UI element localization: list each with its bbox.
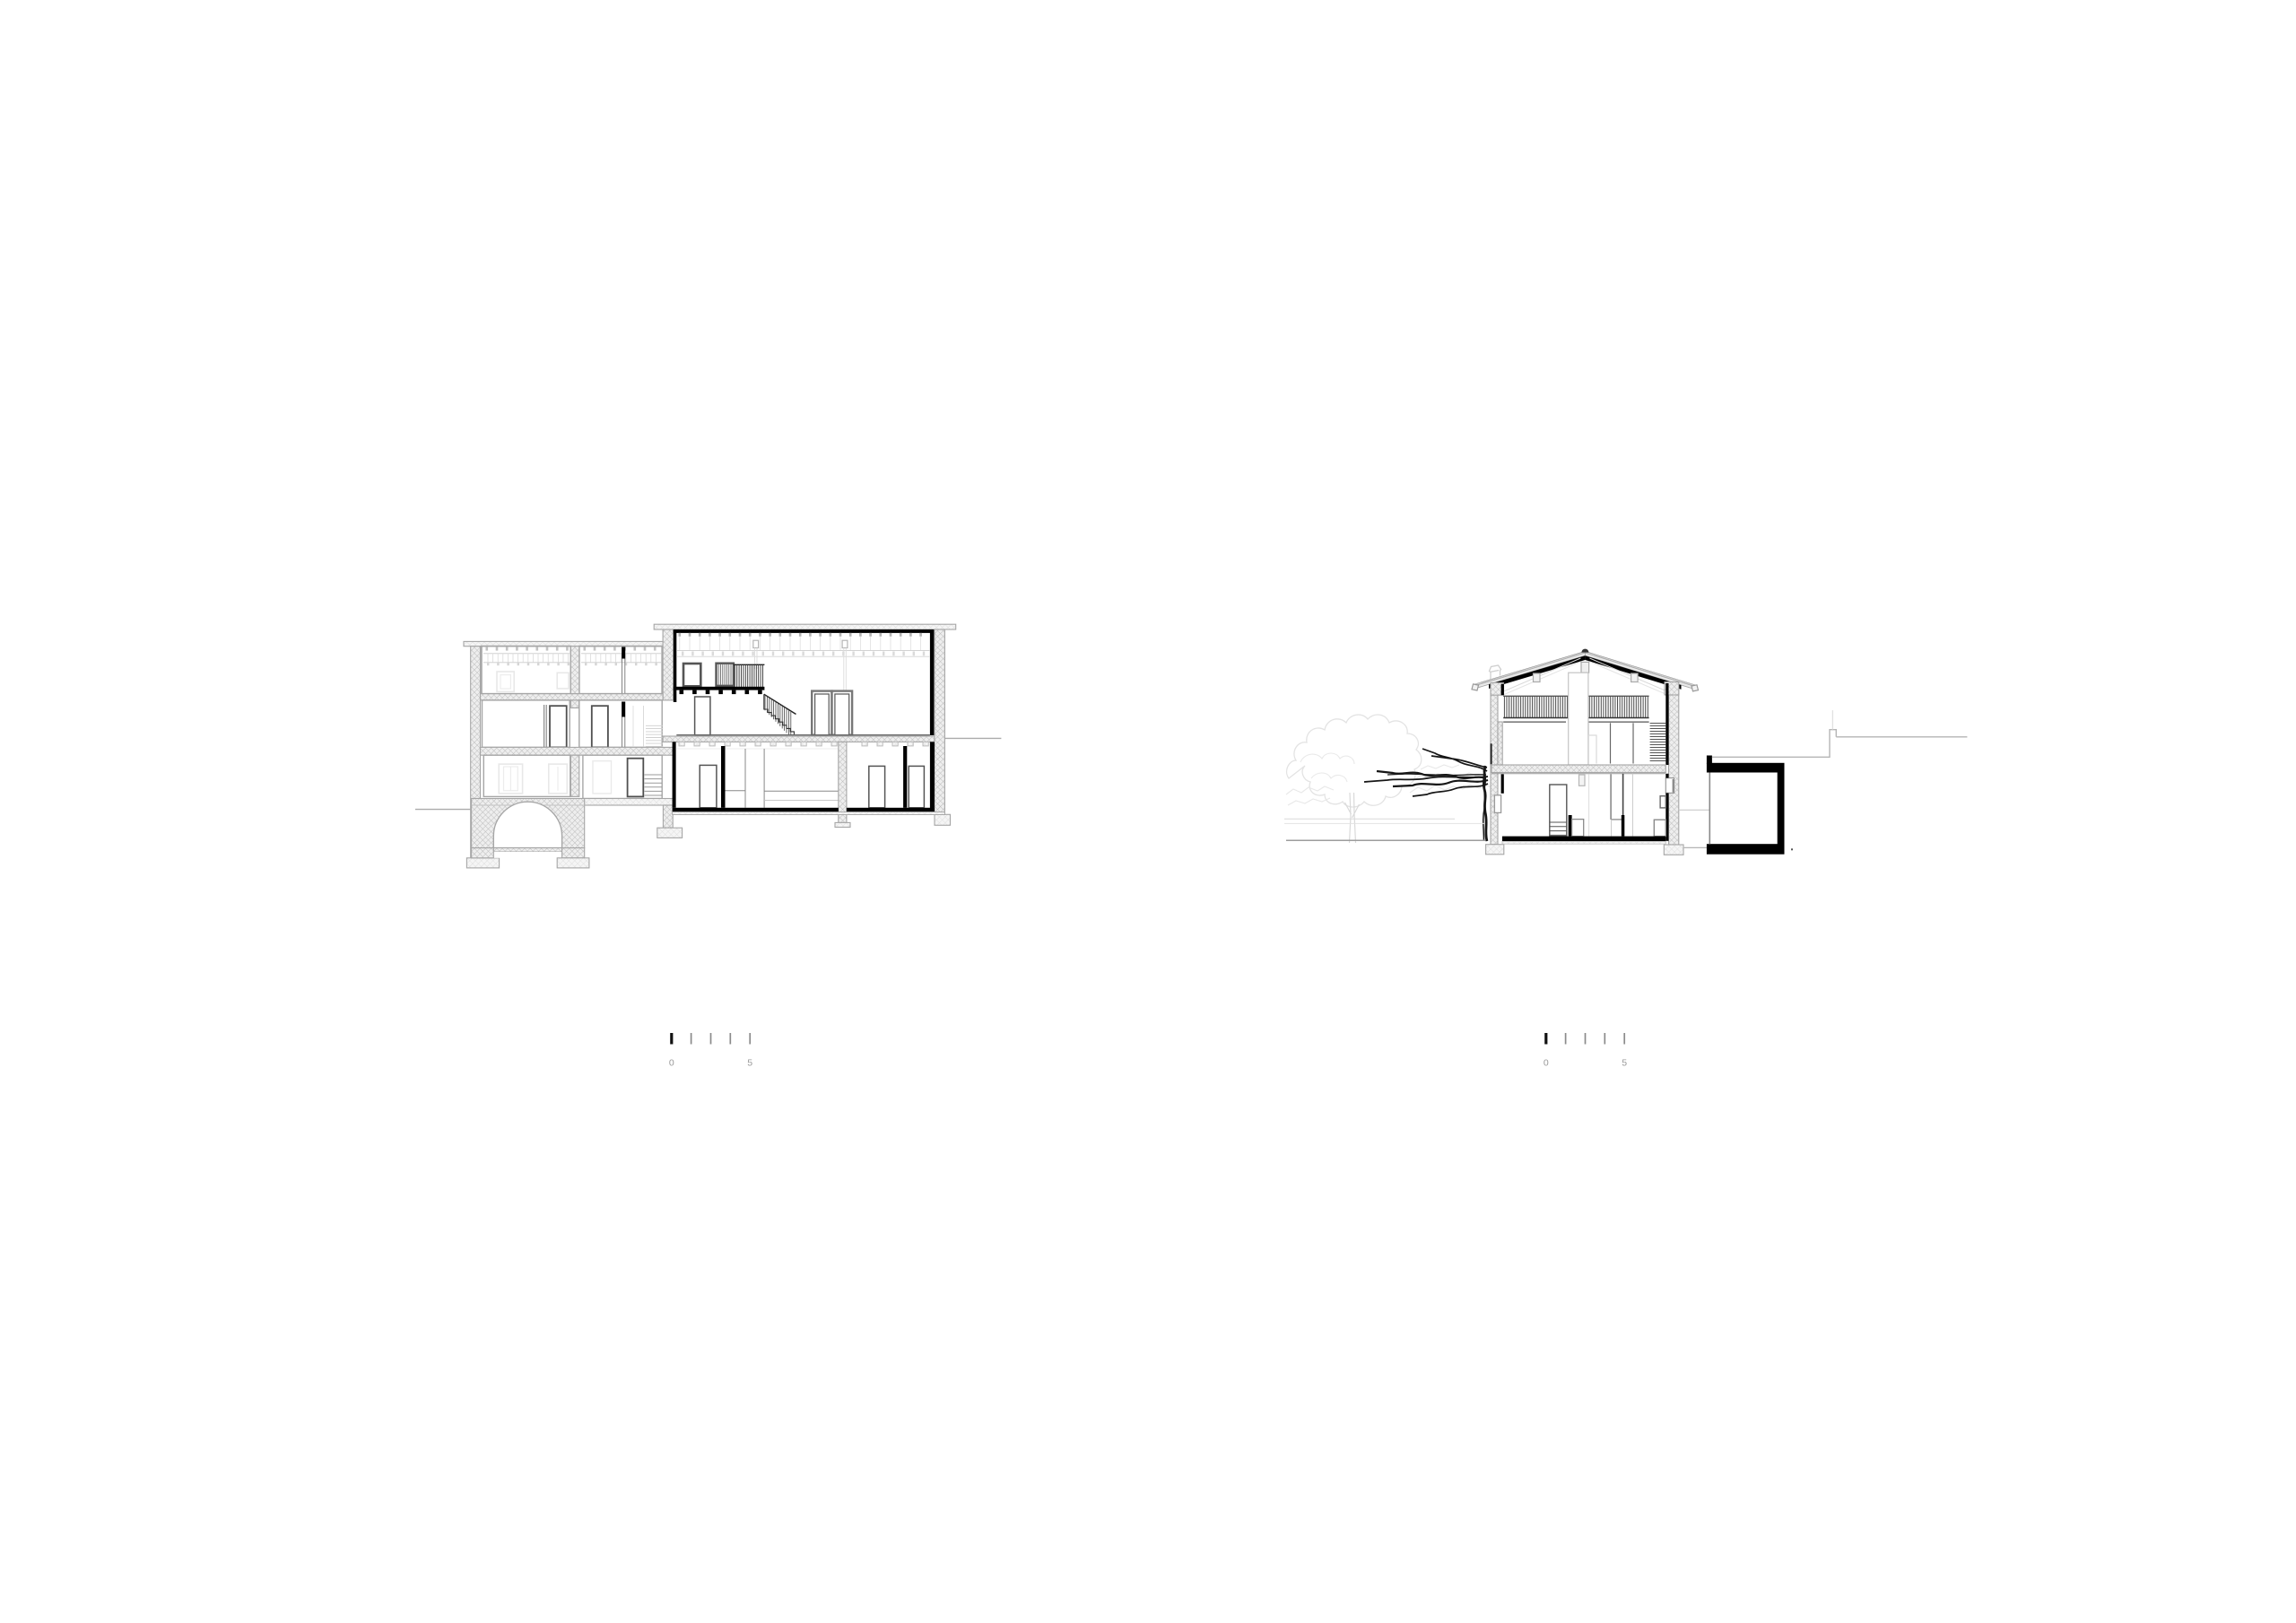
svg-text:0: 0 bbox=[1544, 1058, 1549, 1069]
svg-text:5: 5 bbox=[1622, 1058, 1627, 1069]
svg-text:0: 0 bbox=[669, 1058, 674, 1069]
svg-text:5: 5 bbox=[747, 1058, 752, 1069]
